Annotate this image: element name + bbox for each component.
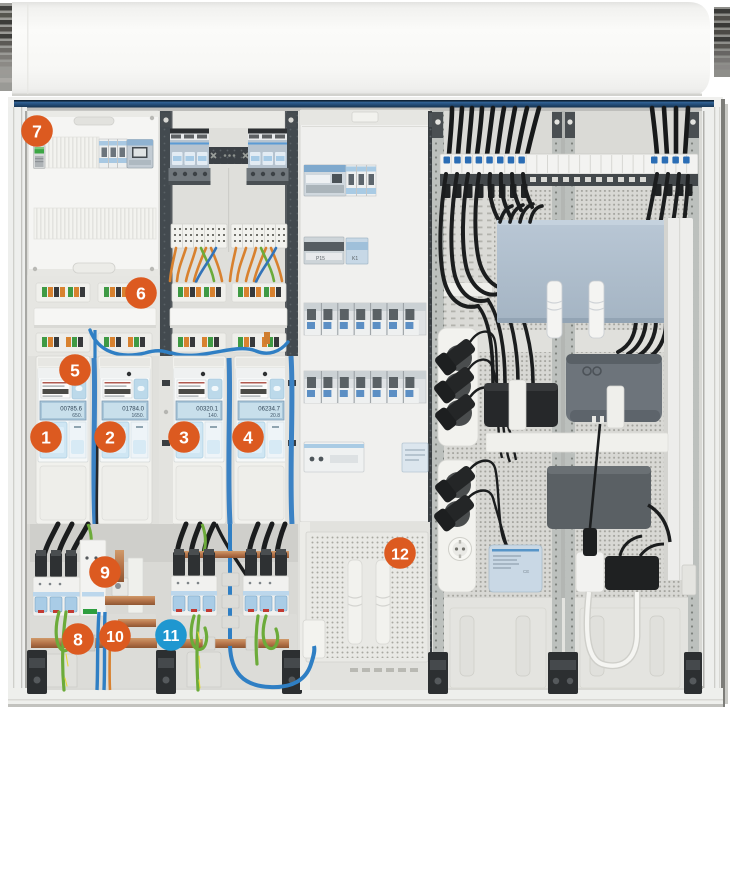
svg-text:01784.0: 01784.0 — [122, 407, 144, 413]
svg-text:1650.: 1650. — [131, 413, 144, 419]
svg-text:650.: 650. — [72, 413, 82, 419]
svg-text:12: 12 — [391, 547, 409, 564]
svg-text:8: 8 — [73, 629, 83, 649]
svg-text:00785.6: 00785.6 — [60, 407, 82, 413]
svg-text:20.8: 20.8 — [270, 413, 280, 419]
svg-text:00320.1: 00320.1 — [196, 407, 218, 413]
svg-text:CE: CE — [523, 569, 529, 574]
svg-text:11: 11 — [163, 628, 180, 645]
svg-text:K1: K1 — [352, 256, 358, 262]
svg-text:2: 2 — [105, 427, 115, 447]
svg-text:5: 5 — [70, 360, 80, 380]
svg-text:4: 4 — [243, 427, 253, 447]
svg-text:9: 9 — [100, 562, 110, 582]
svg-text:6: 6 — [136, 283, 146, 303]
svg-text:06234.7: 06234.7 — [258, 407, 280, 413]
svg-text:10: 10 — [106, 629, 124, 646]
svg-text:3: 3 — [179, 427, 189, 447]
svg-text:140.: 140. — [208, 413, 218, 419]
svg-text:7: 7 — [32, 121, 42, 141]
svg-text:P15: P15 — [316, 256, 325, 262]
svg-text:1: 1 — [41, 427, 51, 447]
